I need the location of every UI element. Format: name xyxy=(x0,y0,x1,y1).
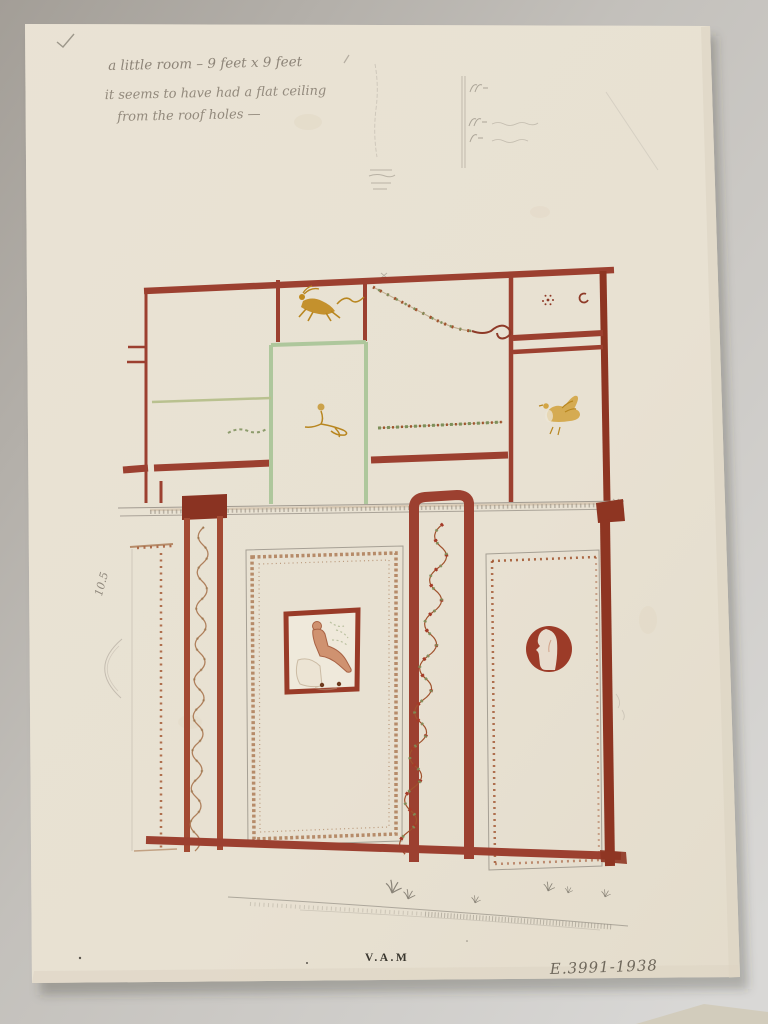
figure-foot-1 xyxy=(320,683,324,687)
note-line-3: from the roof holes — xyxy=(116,107,261,125)
right-border xyxy=(603,271,607,501)
accession-number: E.3991-1938 xyxy=(549,956,659,978)
band-bay1-stub xyxy=(123,468,148,470)
central-picture xyxy=(286,610,358,692)
figure-foot-2 xyxy=(337,682,341,686)
scanned-drawing-photo: a little room – 9 feet x 9 feet it seems… xyxy=(0,0,768,1024)
band-garland-bay xyxy=(371,455,508,460)
band-bay1 xyxy=(154,463,272,468)
museum-stamp: V.A.M xyxy=(365,952,409,964)
right-wall-cap xyxy=(596,499,625,523)
portrait-medallion xyxy=(526,626,572,672)
